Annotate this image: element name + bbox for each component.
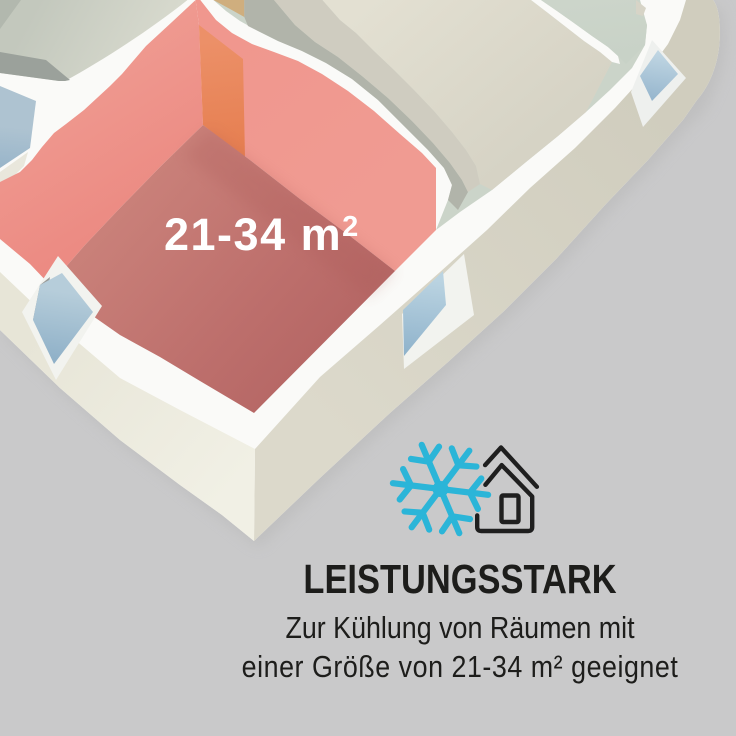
svg-text:21-34 m2: 21-34 m2 (164, 209, 360, 260)
